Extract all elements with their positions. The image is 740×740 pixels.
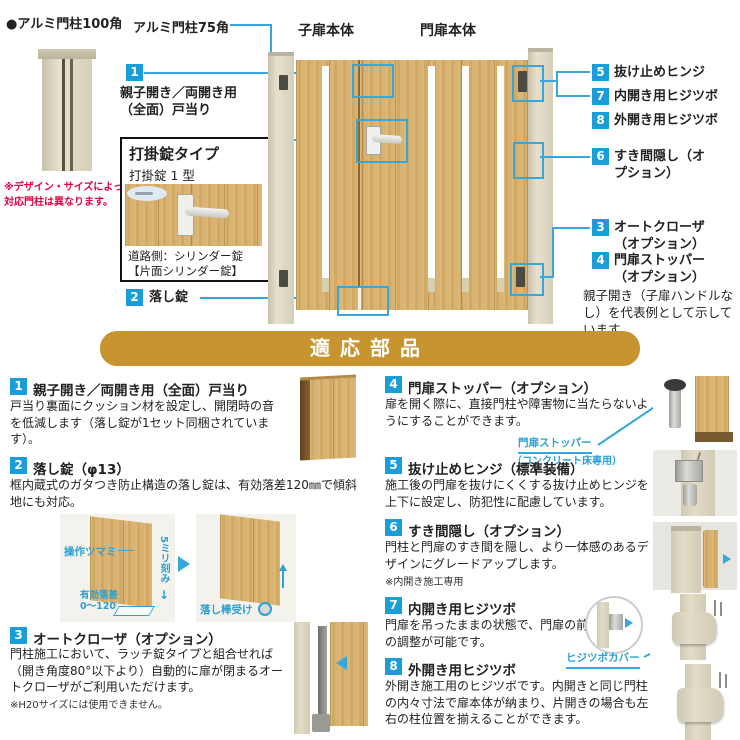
item-8-badge: 8 [385,658,402,675]
item-8-body: 外開き施工用のヒジツボです。内開きと同じ門柱の内々寸法で扉本体が納まり、片開きの… [385,678,651,728]
item-2-body: 框内蔵式のガタつき防止構造の落し錠は、有効落差120㎜で傾斜地にも対応。 [10,477,366,510]
door-edge-piece [300,375,356,461]
arrow-right-icon [723,554,731,564]
callout-3-label: オートクローザ（オプション） [614,220,722,254]
item-3-badge: 3 [10,627,27,644]
callout-line [540,156,590,158]
gate-panel-sketch [220,514,280,605]
callout-8-label: 外開き用ヒジツボ [614,113,740,130]
post-groove [62,59,65,171]
drop-range-annotation: 有効落差 0〜120 [80,590,118,613]
door-bottom-sketch [695,376,729,436]
item-6-title: すき間隠し（オプション） [408,520,570,540]
item-3-body: 門柱施工において、ラッチ錠タイプと組合せれば（開き角度80°以下より）自動的に扉… [10,646,294,696]
pillar75-label: アルミ門柱75角 [133,17,229,36]
callout-box-doorstop [352,64,394,98]
gate-slat [428,66,435,278]
item-5-badge: 5 [385,457,402,474]
callout-5-label: 抜け止めヒンジ [614,65,736,82]
ground-sketch [113,606,155,616]
item-4-body: 扉を開く際に、直接門柱や障害物に当たらないようにすることができます。 [385,396,657,429]
item-3-title: オートクローザ（オプション） [33,628,222,648]
receiver-annotation: 落し棒受け [200,602,253,617]
item-2-photo-before: 操作ツマミ 5ミリ刻み ↓ 有効落差 0〜120 [60,514,175,622]
catalog-page: ●アルミ門柱100角 ※デザイン・サイズによって 対応門柱は異なります。 アルミ… [0,0,740,740]
item-6-photo [653,522,737,590]
item-3-photo [288,622,370,734]
callout-line [556,71,590,73]
gap-cover-strip [703,530,718,588]
gate-slat [462,66,469,278]
item-2-badge: 2 [10,457,27,474]
stopper-cap [664,379,686,391]
knob-annotation: 操作ツマミ [64,544,117,559]
item-5-photo [653,450,737,516]
callout-line [552,227,590,229]
item-2-photo-after: 落し棒受け [196,514,296,622]
slat-plug [462,278,469,292]
item-8-photo [653,664,737,740]
arrow-right-icon [178,556,190,572]
lock-photo [125,184,262,246]
receiver-circle [258,602,272,616]
post-sketch [294,622,310,734]
hinge-cover-annotation: ヒジツボカバー [566,650,640,669]
drop-bolt-rod [358,288,361,310]
item-8-title: 外開き用ヒジツボ [408,659,516,679]
callout-box-gap-cover [513,142,544,179]
item-6-note: ※内開き施工専用 [385,573,463,588]
item-7-badge: 7 [385,597,402,614]
callout-2-label: 落し錠 [149,290,188,307]
item-6-body: 門柱と門扉のすき間を隠し、より一体感のあるデザインにグレードアップします。 [385,539,657,572]
callout-box-drop-bolt [337,286,389,316]
item-5-title: 抜け止めヒンジ（標準装備） [408,458,584,478]
post-sketch [597,602,609,648]
main-door-label: 門扉本体 [420,20,476,40]
callout-line [556,95,590,97]
key-icon [127,186,167,201]
callout-1-badge: 1 [126,64,143,81]
item-3-note: ※H20サイズには使用できません。 [10,696,168,711]
hinge-barrel [683,484,697,506]
callout-box-lock [356,119,408,163]
hinge-pin [725,674,727,688]
callout-8-badge: 8 [592,112,609,129]
item-2-title: 落し錠（φ13） [33,458,130,478]
door-bottom-rail [695,432,733,442]
hinge-cover-block [677,688,723,722]
item-1-body: 戸当り裏面にクッション材を設定し、開閉時の音を低減します（落し錠が1セット同梱さ… [10,398,280,448]
child-door-label: 子扉本体 [298,20,354,40]
callout-3-badge: 3 [592,219,609,236]
arrow-up-head [279,564,287,571]
item-6-badge: 6 [385,519,402,536]
post100-label: ●アルミ門柱100角 [6,13,122,32]
callout-line [556,71,558,97]
item-4-title: 門扉ストッパー（オプション） [408,377,597,397]
item-1-title: 親子開き／両開き用（全面）戸当り [33,379,249,399]
hinge-block [609,614,623,630]
callout-7-label: 内開き用ヒジツボ [614,89,740,106]
post-cap [38,49,96,59]
auto-closer-bar [318,626,327,714]
callout-2-badge: 2 [126,289,143,306]
item-5-body: 施工後の門扉を抜けにくくする抜け止めヒンジを上下に設定し、防犯性に配慮しています… [385,477,657,510]
callout-4-badge: 4 [592,252,609,269]
item-7-photo [650,594,738,660]
item-4-badge: 4 [385,376,402,393]
lock-type-title: 打掛錠タイプ [129,143,219,164]
callout-line [552,227,554,278]
hinge-pin [714,600,716,616]
door-sketch [330,622,368,726]
gate-body [296,60,528,310]
lock-type-subtitle: 打掛錠 1 型 [129,165,195,184]
hinge-plate [675,460,703,482]
callout-6-badge: 6 [592,148,609,165]
callout-6-label: すき間隠し（オプション） [614,149,706,183]
arrow-right-icon [625,618,633,628]
callout-7-badge: 7 [592,88,609,105]
slat-plug [322,278,329,292]
hinge-pin [719,672,721,688]
post-body [42,59,92,171]
post100-photo [16,35,116,177]
hinge-bottom-left [279,270,288,287]
pitch-annotation: 5ミリ刻み [156,536,171,583]
lock-caption: 道路側：シリンダー錠 【片面シリンダー錠】 [128,249,243,279]
stopper-cylinder [669,388,681,428]
gate-slat [497,66,504,278]
slat-plug [497,278,504,292]
arrow-down-icon: ↓ [159,588,169,602]
hinge-pin [720,602,722,616]
arrow-left-icon [336,656,347,670]
arrow-up-icon [282,568,284,588]
section-banner: 適応部品 [100,331,640,366]
post-groove [70,59,73,171]
hinge-bottom-right [516,267,525,287]
item-1-badge: 1 [10,378,27,395]
item-7-title: 内開き用ヒジツボ [408,598,516,618]
callout-4-label: 門扉ストッパー（オプション） [614,253,722,287]
gate-slat [322,66,329,278]
callout-box-top-hinge [512,65,544,102]
item-4-photo [653,372,737,450]
hinge-top-right [518,71,527,92]
slat-plug [428,278,435,292]
item-1-photo [280,374,364,458]
lock-type-box: 打掛錠タイプ 打掛錠 1 型 道路側：シリンダー錠 【片面シリンダー錠】 [120,137,271,282]
callout-5-badge: 5 [592,64,609,81]
hinge-top-left [279,75,288,90]
post-sketch [671,526,701,593]
key-shaft [135,192,153,195]
auto-closer-body [312,714,330,732]
callout-1-label: 親子開き／両開き用 （全面）戸当り [120,86,260,120]
hinge-cover-block [672,612,716,644]
annotation-line [118,550,134,551]
door-edge-strip [300,380,310,461]
item-7-inset-photo [585,596,643,654]
callout-line [230,24,272,26]
